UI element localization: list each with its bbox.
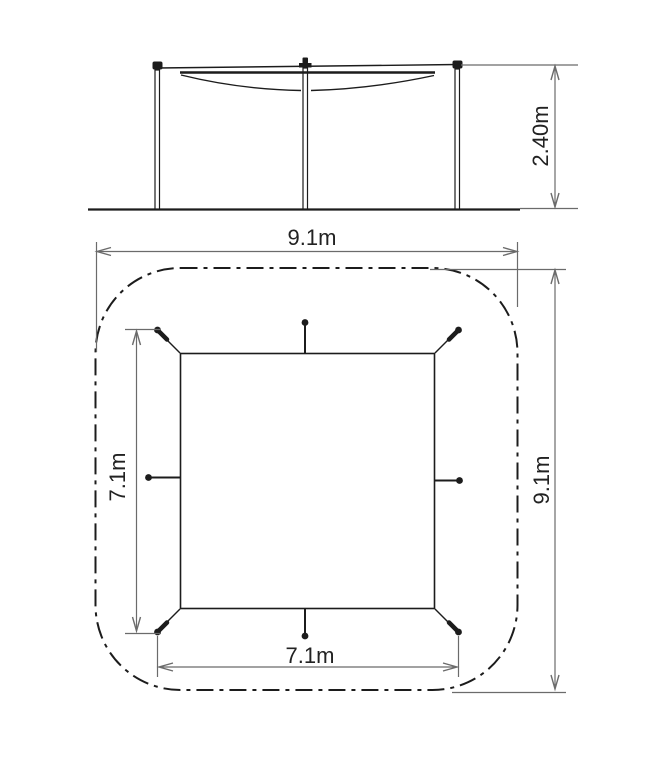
dimension-drawing: 2.40m <box>0 0 652 768</box>
pole-dot-top <box>302 319 309 326</box>
canopy-width-label: 7.1m <box>286 643 335 668</box>
canopy-depth-label: 7.1m <box>105 453 130 502</box>
left-pole <box>155 70 160 209</box>
plan-view: 9.1m 9.1m 7.1m 7.1m <box>96 225 567 693</box>
outer-width-label: 9.1m <box>288 225 337 250</box>
canopy-outline <box>181 354 435 609</box>
mid-edge-anchors <box>145 319 463 639</box>
canopy-width-dimension: 7.1m <box>158 636 459 677</box>
sail-sag-curve-right <box>311 76 434 91</box>
pole-dot-left <box>145 474 152 481</box>
outer-depth-label: 9.1m <box>529 456 554 505</box>
canopy-depth-dimension: 7.1m <box>105 330 161 634</box>
pole-dot-right <box>456 477 463 484</box>
height-dimension: 2.40m <box>461 65 578 209</box>
drawing-canvas: 2.40m <box>0 0 652 768</box>
center-pole <box>303 68 308 209</box>
elevation-view: 2.40m <box>88 58 578 210</box>
corner-anchors <box>154 327 462 636</box>
right-pole <box>455 69 460 209</box>
pole-dot-bottom-left <box>154 629 161 636</box>
pole-dot-top-right <box>455 327 462 334</box>
height-dim-label: 2.40m <box>528 105 553 166</box>
sail-sag-curve-left <box>181 75 301 91</box>
center-pole-cap-knob <box>303 58 309 64</box>
pole-dot-bottom-right <box>455 629 462 636</box>
pole-dot-bottom <box>302 633 309 640</box>
